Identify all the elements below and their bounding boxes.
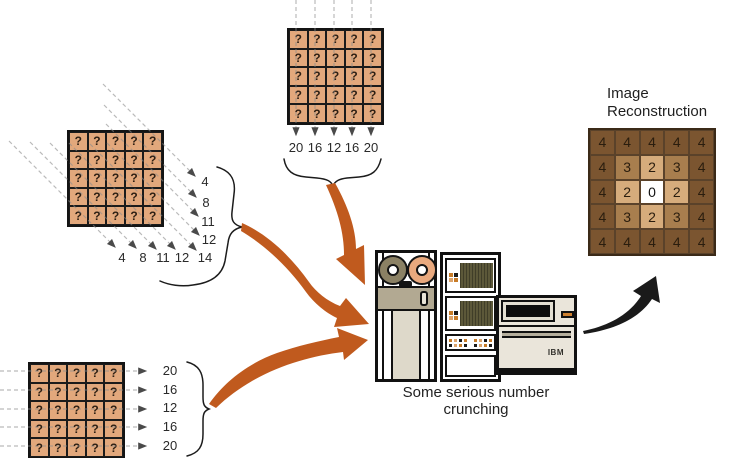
unknown-cell: ? (69, 151, 88, 170)
reconstruction-cell: 4 (615, 229, 640, 254)
unknown-cell: ? (67, 364, 86, 383)
indicator-light (489, 344, 492, 347)
unknown-cell: ? (104, 420, 123, 439)
reconstruction-cell: 4 (689, 204, 714, 229)
unknown-cell: ? (106, 151, 125, 170)
unknown-grid-vertical-projection: ????????????????????????? (287, 28, 384, 125)
unknown-cell: ? (308, 49, 327, 68)
indicator-light (454, 339, 457, 342)
projection-value: 12 (157, 400, 183, 415)
rack-blank-panel (445, 355, 496, 377)
card-slot (561, 311, 574, 318)
unknown-cell: ? (143, 206, 162, 225)
unknown-cell: ? (30, 383, 49, 402)
rack-module (445, 258, 496, 293)
unknown-cell: ? (104, 383, 123, 402)
module-screen (460, 263, 493, 288)
orange-arrow-from-bottom (209, 328, 368, 408)
unknown-cell: ? (69, 169, 88, 188)
computer-caption: Some serious number crunching (370, 384, 582, 418)
unknown-cell: ? (326, 30, 345, 49)
indicator-light (449, 311, 453, 315)
unknown-cell: ? (88, 151, 107, 170)
reconstruction-cell: 4 (640, 130, 665, 155)
unknown-cell: ? (308, 104, 327, 123)
unknown-cell: ? (69, 206, 88, 225)
indicator-light (449, 339, 452, 342)
unknown-cell: ? (88, 206, 107, 225)
reconstruction-cell: 2 (640, 155, 665, 180)
unknown-cell: ? (345, 30, 364, 49)
indicator-light (484, 344, 487, 347)
projection-value: 14 (192, 250, 218, 265)
projection-value: 20 (157, 438, 183, 453)
unknown-cell: ? (88, 188, 107, 207)
control-panel (378, 286, 434, 311)
unknown-cell: ? (106, 132, 125, 151)
unknown-cell: ? (143, 151, 162, 170)
unknown-cell: ? (125, 169, 144, 188)
rack-lights-row (445, 334, 496, 351)
orange-arrow-from-top (326, 183, 365, 285)
tape-drive-icon (375, 250, 437, 382)
reel-hub (416, 264, 428, 276)
projection-value: 4 (192, 174, 218, 189)
unknown-cell: ? (30, 420, 49, 439)
reconstruction-cell: 2 (664, 180, 689, 205)
unknown-cell: ? (289, 30, 308, 49)
indicator-light (489, 339, 492, 342)
unknown-cell: ? (143, 132, 162, 151)
unknown-cell: ? (125, 206, 144, 225)
indicator-light (479, 339, 482, 342)
groove (502, 331, 571, 338)
indicator-light (474, 344, 477, 347)
unknown-cell: ? (363, 49, 382, 68)
indicator-light (459, 344, 462, 347)
unknown-cell: ? (69, 132, 88, 151)
unknown-cell: ? (326, 104, 345, 123)
reconstruction-cell: 4 (590, 204, 615, 229)
unknown-cell: ? (49, 364, 68, 383)
unknown-cell: ? (67, 420, 86, 439)
projection-value: 16 (157, 382, 183, 397)
unknown-cell: ? (289, 67, 308, 86)
unknown-cell: ? (143, 188, 162, 207)
unknown-cell: ? (345, 104, 364, 123)
unknown-cell: ? (125, 132, 144, 151)
rack-module (445, 296, 496, 331)
ibm-label: IBM (548, 348, 564, 357)
cabinet-column (391, 311, 421, 379)
tape-reel-right-icon (407, 255, 437, 285)
reconstruction-cell: 4 (689, 229, 714, 254)
projection-value: 8 (193, 195, 219, 210)
ibm-computer-icon: IBM (496, 295, 577, 375)
brace-bottom (187, 362, 209, 456)
output-arrow (583, 276, 660, 334)
unknown-cell: ? (67, 438, 86, 457)
indicator-light (454, 273, 458, 277)
unknown-cell: ? (30, 401, 49, 420)
input-arrows (209, 183, 369, 408)
reconstruction-grid: 4444443234420244323444444 (588, 128, 716, 256)
unknown-cell: ? (289, 104, 308, 123)
indicator-light (479, 344, 482, 347)
unknown-cell: ? (86, 420, 105, 439)
unknown-cell: ? (363, 67, 382, 86)
indicator-light (464, 344, 467, 347)
unknown-cell: ? (88, 169, 107, 188)
reconstruction-cell: 4 (590, 180, 615, 205)
unknown-cell: ? (345, 49, 364, 68)
unknown-cell: ? (308, 67, 327, 86)
reconstruction-cell: 4 (615, 130, 640, 155)
unknown-cell: ? (104, 364, 123, 383)
indicator-light (459, 339, 462, 342)
unknown-cell: ? (104, 401, 123, 420)
unknown-cell: ? (289, 86, 308, 105)
indicator-light (484, 339, 487, 342)
unknown-cell: ? (289, 49, 308, 68)
unknown-cell: ? (67, 401, 86, 420)
projection-value: 20 (358, 140, 384, 155)
unknown-cell: ? (69, 188, 88, 207)
unknown-cell: ? (106, 188, 125, 207)
unknown-cell: ? (125, 188, 144, 207)
unknown-cell: ? (49, 420, 68, 439)
unknown-cell: ? (326, 49, 345, 68)
unknown-cell: ? (363, 104, 382, 123)
unknown-cell: ? (49, 401, 68, 420)
reconstruction-cell: 3 (615, 204, 640, 229)
reconstruction-cell: 3 (664, 204, 689, 229)
unknown-cell: ? (106, 169, 125, 188)
unknown-cell: ? (363, 30, 382, 49)
projection-value: 20 (157, 363, 183, 378)
reconstruction-cell: 3 (664, 155, 689, 180)
reconstruction-title: Image Reconstruction (607, 85, 707, 121)
reconstruction-cell: 4 (664, 130, 689, 155)
reel-hub (387, 264, 399, 276)
diagram-canvas: ????????????????????????? ??????????????… (0, 0, 754, 458)
indicator-light (474, 339, 477, 342)
unknown-cell: ? (86, 401, 105, 420)
unknown-cell: ? (88, 132, 107, 151)
reconstruction-cell: 4 (664, 229, 689, 254)
reconstruction-cell: 4 (640, 229, 665, 254)
unknown-cell: ? (30, 364, 49, 383)
indicator-light (449, 278, 453, 282)
reconstruction-cell: 4 (590, 229, 615, 254)
unknown-grid-diagonal-projection: ????????????????????????? (67, 130, 164, 227)
unknown-cell: ? (86, 438, 105, 457)
indicator-light (449, 316, 453, 320)
unknown-cell: ? (143, 169, 162, 188)
panel-slot (420, 291, 428, 306)
indicator-light (449, 273, 453, 277)
reconstruction-cell: 4 (689, 155, 714, 180)
indicator-light (464, 339, 467, 342)
indicator-light (449, 344, 452, 347)
unknown-cell: ? (363, 86, 382, 105)
monitor-screen (506, 305, 550, 317)
indicator-light (454, 311, 458, 315)
unknown-cell: ? (345, 67, 364, 86)
reconstruction-cell: 4 (590, 130, 615, 155)
unknown-cell: ? (86, 383, 105, 402)
unknown-cell: ? (326, 67, 345, 86)
orange-arrow-from-left (241, 223, 369, 327)
reconstruction-title-line1: Image (607, 85, 707, 103)
reconstruction-title-line2: Reconstruction (607, 103, 707, 121)
reconstruction-cell: 0 (640, 180, 665, 205)
projection-value: 16 (157, 419, 183, 434)
unknown-cell: ? (308, 86, 327, 105)
divider-line (499, 325, 574, 327)
reconstruction-cell: 4 (689, 180, 714, 205)
unknown-cell: ? (104, 438, 123, 457)
unknown-cell: ? (106, 206, 125, 225)
reconstruction-cell: 2 (640, 204, 665, 229)
unknown-cell: ? (326, 86, 345, 105)
machine-base (499, 368, 574, 372)
unknown-cell: ? (49, 383, 68, 402)
unknown-cell: ? (308, 30, 327, 49)
projection-value: 11 (195, 214, 221, 229)
reconstruction-cell: 4 (689, 130, 714, 155)
unknown-cell: ? (345, 86, 364, 105)
module-screen (460, 301, 493, 326)
unknown-cell: ? (30, 438, 49, 457)
reconstruction-cell: 3 (615, 155, 640, 180)
unknown-cell: ? (67, 383, 86, 402)
indicator-light (454, 316, 458, 320)
rack-computer-icon (440, 252, 501, 382)
brace-top (284, 159, 381, 186)
indicator-light (454, 278, 458, 282)
unknown-cell: ? (125, 151, 144, 170)
unknown-grid-horizontal-projection: ????????????????????????? (28, 362, 125, 458)
reconstruction-cell: 4 (590, 155, 615, 180)
unknown-cell: ? (49, 438, 68, 457)
indicator-light (454, 344, 457, 347)
projection-value: 12 (196, 232, 222, 247)
monitor (501, 300, 555, 322)
unknown-cell: ? (86, 364, 105, 383)
reconstruction-cell: 2 (615, 180, 640, 205)
